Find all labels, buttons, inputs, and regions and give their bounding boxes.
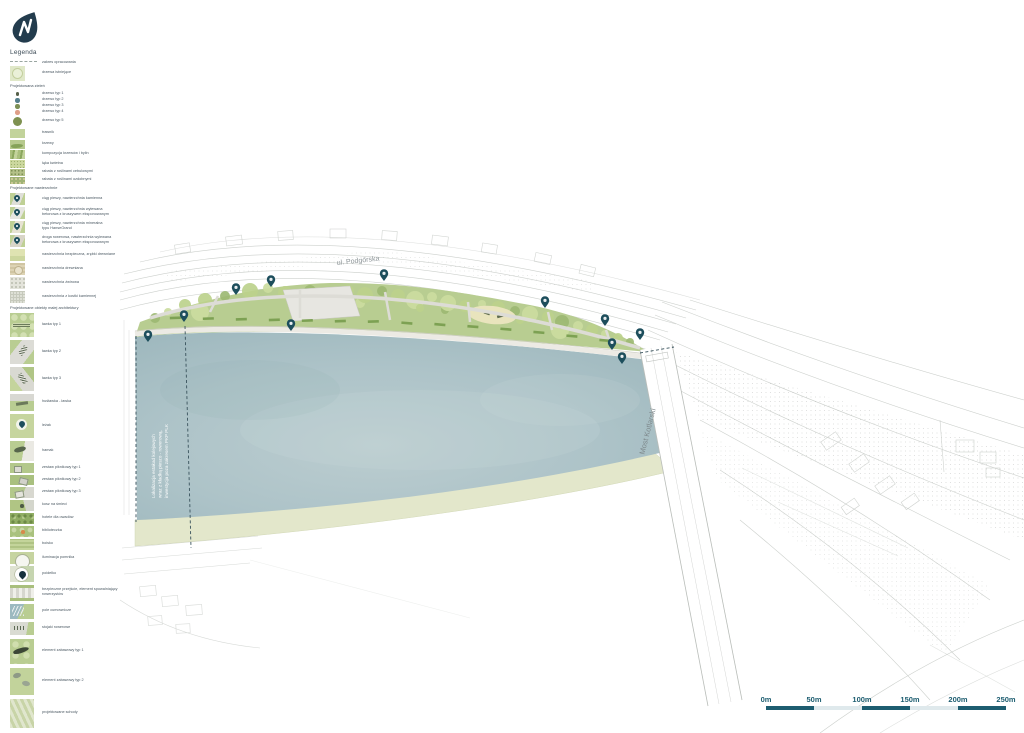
river-note: Lokalizacja estakad kolejowych wraz z kł… <box>151 423 169 498</box>
location-pin-icon <box>541 296 549 308</box>
legend-label: zakres opracowania <box>42 61 76 65</box>
legend-label: stojaki rowerowe <box>42 626 70 630</box>
legend-label: nawierzchnia bezpieczna, zrębki drewnian… <box>42 253 115 257</box>
legend-label: rabata z roślinami cebulowymi <box>42 170 93 174</box>
legend-swatch-pav-safe <box>10 249 25 261</box>
legend-swatch-s-przejscie <box>10 585 34 601</box>
location-pin-icon <box>601 314 609 326</box>
scale-label: 250m <box>996 695 1015 704</box>
legend-swatch-shrub <box>10 140 25 149</box>
legend-swatch-mix <box>10 150 25 159</box>
legend-label: drzewa istniejące <box>42 71 71 75</box>
legend-label: drzewo typ 2 <box>42 98 64 102</box>
legend-swatch-s-hotele <box>10 513 34 524</box>
legend-swatch-s-hamak <box>10 441 34 461</box>
legend-label: nawierzchnia żwirowa <box>42 281 79 285</box>
legend-label: nawierzchnia drewniana <box>42 267 83 271</box>
legend-label: drzewo typ 5 <box>42 119 64 123</box>
legend-label: hamak <box>42 449 53 453</box>
legend-label: biblioteczka <box>42 529 62 533</box>
legend-swatch-pav-wood <box>10 263 25 275</box>
legend-label: drzewo typ 1 <box>42 92 64 96</box>
legend-panel: Legenda zakres opracowaniadrzewa istniej… <box>0 0 130 733</box>
legend-label: zestaw piknikowy typ 1 <box>42 466 81 470</box>
legend-swatch-s-piknik2 <box>10 475 34 485</box>
legend-swatch-dash <box>10 61 37 65</box>
legend-label: element zabawowy typ 2 <box>42 679 84 683</box>
legend-label: trawnik <box>42 131 54 135</box>
legend-label: typu HanseGrand <box>42 227 72 231</box>
legend-swatch-dot <box>15 104 20 109</box>
legend-swatch-s-poidelko <box>10 566 34 582</box>
legend-label: drzewo typ 4 <box>42 110 64 114</box>
legend-label: rabata z roślinami ozdobnymi <box>42 178 91 182</box>
scale-segment <box>958 706 1006 710</box>
legend-label: hotele dla owadów <box>42 516 73 520</box>
scale-label: 200m <box>948 695 967 704</box>
legend-swatch-s-biblio <box>10 526 34 537</box>
legend-swatch-lawn <box>10 129 25 138</box>
river-note-line: inwestycja poza zakresem PKP PLK <box>164 423 169 498</box>
scale-segment <box>910 706 958 710</box>
legend-label: ławka typ 1 <box>42 323 61 327</box>
legend-label: kosz na śmieci <box>42 503 67 507</box>
legend-label: kompozycja krzewów i bylin <box>42 152 89 156</box>
legend-swatch-s-stojaki <box>10 622 34 635</box>
legend-swatch-s-diag2 <box>10 367 34 391</box>
scale-label: 100m <box>852 695 871 704</box>
legend-label: huśtawka - ławka <box>42 400 71 404</box>
scale-segment <box>766 706 814 710</box>
legend-label: element zabawowy typ 1 <box>42 649 84 653</box>
legend-label: ławka typ 3 <box>42 377 61 381</box>
scale-label: 0m <box>761 695 772 704</box>
legend-label: nawierzchnia z kostki kamiennej <box>42 295 96 299</box>
plaza <box>283 286 360 321</box>
legend-swatch-s-lawn-bench <box>10 313 34 337</box>
legend-label: pole cumownicze <box>42 609 71 613</box>
masterplan-canvas: ul. Podgórska Most Kotlarski Lokalizacja… <box>0 0 1024 733</box>
legend-section-header: Projektowane nawierzchnie <box>10 185 57 190</box>
legend-swatch-s-lezak <box>10 414 34 438</box>
legend-section-header: Projektowane obiekty małej architektury <box>10 305 79 310</box>
legend-swatch-bed2 <box>10 177 25 184</box>
legend-swatch-s-ilum <box>10 552 34 564</box>
scale-segment <box>862 706 910 710</box>
scale-bar: 0m50m100m150m200m250m <box>764 695 1008 717</box>
legend-swatch-tree-exist <box>10 66 25 81</box>
river-note-line: wraz z kładką pieszo - rowerową, <box>158 430 163 498</box>
legend-label: iluminacja pomnika <box>42 556 74 560</box>
legend-label: projektowane schody <box>42 711 78 715</box>
location-pin-icon <box>232 283 240 295</box>
scale-segment <box>814 706 862 710</box>
legend-label: łąka kwietna <box>42 162 63 166</box>
legend-label: krzewy <box>42 142 54 146</box>
legend-swatch-s-kosz <box>10 500 34 511</box>
legend-label: betonowa z kruszywem eksponowanym <box>42 213 109 217</box>
legend-swatch-s-pole <box>10 604 34 619</box>
legend-swatch-dot <box>15 110 20 115</box>
legend-swatch-s-diag-bench <box>10 340 34 364</box>
legend-swatch-s-boisko <box>10 539 34 550</box>
legend-label: zestaw piknikowy typ 2 <box>42 478 81 482</box>
scale-label: 150m <box>900 695 919 704</box>
river-note-line: Lokalizacja estakad kolejowych <box>151 434 156 498</box>
legend-label: boisko <box>42 542 53 546</box>
legend-section-header: Projektowana zieleń <box>10 83 45 88</box>
location-pin-icon <box>636 328 644 340</box>
legend-label: rowerzystów <box>42 593 63 597</box>
scale-label: 50m <box>806 695 821 704</box>
legend-swatch-dot <box>15 98 20 103</box>
legend-swatch-s-piknik3 <box>10 487 34 498</box>
legend-swatch-dot <box>16 92 20 96</box>
location-pin-icon <box>380 269 388 281</box>
legend-swatch-pav-gravel <box>10 277 25 289</box>
legend-swatch-bed1 <box>10 169 25 176</box>
legend-swatch-dot <box>13 117 22 126</box>
legend-label: zestaw piknikowy typ 3 <box>42 490 81 494</box>
legend-label: ławka typ 2 <box>42 350 61 354</box>
legend-swatch-s-schody <box>10 699 34 728</box>
legend-label: ciąg pieszy, nawierzchnia kamienna <box>42 197 102 201</box>
legend-swatch-s-zabaw2 <box>10 668 34 695</box>
legend-swatch-s-zabaw1 <box>10 639 34 664</box>
legend-swatch-s-swing <box>10 394 34 411</box>
legend-title: Legenda <box>10 49 37 56</box>
legend-swatch-s-piknik <box>10 463 34 473</box>
legend-label: betonowa z kruszywem eksponowanym <box>42 241 109 245</box>
legend-swatch-pav-sett <box>10 291 25 303</box>
legend-label: drzewo typ 3 <box>42 104 64 108</box>
legend-swatch-meadow <box>10 160 25 168</box>
legend-label: leżak <box>42 424 51 428</box>
legend-label: poidełko <box>42 572 56 576</box>
